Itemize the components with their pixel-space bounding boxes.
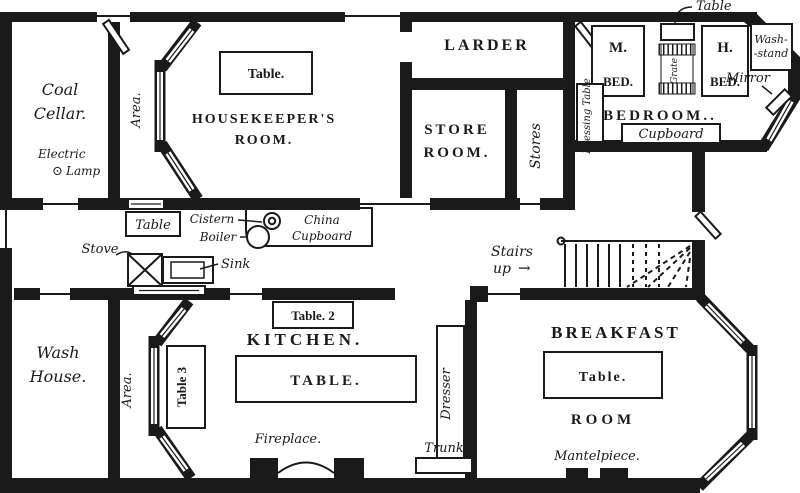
- h-bed-label-line1: H.: [717, 40, 733, 56]
- coal-cellar-label-line2: Cellar.: [34, 104, 86, 123]
- wall-segment: [400, 62, 412, 198]
- stove: Stove: [82, 242, 163, 286]
- dresser-label: Dresser: [439, 367, 454, 420]
- bedroom-label: BEDROOM..: [603, 108, 717, 124]
- bedroom-table-label: Table: [696, 0, 732, 14]
- trunk: Trunk: [416, 441, 472, 473]
- sink-label: Sink: [221, 257, 250, 272]
- wash-house-label-line1: Wash: [36, 343, 79, 362]
- grate-label: Grate: [670, 58, 680, 84]
- wall-segment: [505, 90, 517, 198]
- wash-stand-label-line1: Wash-: [754, 33, 788, 46]
- cistern-inner-circle: [269, 218, 275, 224]
- wall-segment: [0, 248, 12, 480]
- lamp-icon: ⊙: [52, 164, 63, 179]
- electric-lamp: Electric ⊙ Lamp: [37, 147, 101, 179]
- door-swing: [695, 212, 720, 239]
- wall-segment: [78, 198, 128, 210]
- wall-segment: [430, 198, 520, 210]
- wall-segment: [108, 22, 120, 198]
- kitchen-table-label: TABLE.: [290, 373, 362, 389]
- china-cupboard-label-line2: Cupboard: [292, 229, 352, 243]
- stairs-up-arrow-icon: →: [518, 259, 531, 277]
- kitchen-table-3: Table 3: [167, 346, 205, 428]
- m-bed-label-line1: M.: [609, 40, 627, 56]
- breakfast-table-label: Table.: [579, 370, 627, 385]
- wall-segment: [465, 300, 477, 478]
- breakfast-table: Table.: [544, 352, 662, 398]
- kitchen-table: TABLE.: [236, 356, 416, 402]
- kitchen-label: KITCHEN.: [247, 330, 364, 349]
- coal-cellar-label-line1: Coal: [42, 80, 79, 99]
- breakfast-room-label-line1: BREAKFAST: [551, 323, 681, 342]
- floor-plan: Stairs up → Coal Cellar. HOUSEKEEPER'S R…: [0, 0, 800, 493]
- wall-segment: [412, 78, 563, 90]
- fireplace-label: Fireplace.: [254, 432, 321, 447]
- passage-table-label: Table: [135, 218, 171, 233]
- store-room-label-line2: ROOM.: [423, 145, 490, 161]
- housekeepers-room-label-line1: HOUSEKEEPER'S: [192, 112, 336, 127]
- wall-segment: [108, 300, 120, 478]
- mantelpiece-label: Mantelpiece.: [553, 449, 640, 464]
- mirror-leader: [762, 86, 772, 94]
- electric-lamp-label-line1: Electric: [37, 147, 86, 161]
- housekeepers-bay-window: [160, 22, 198, 199]
- china-cupboard-label-line1: China: [304, 213, 340, 227]
- wall-segment: [130, 12, 345, 22]
- housekeepers-table-label: Table.: [248, 67, 284, 82]
- boiler-circle: [247, 226, 269, 248]
- boiler-label: Boiler: [199, 230, 238, 244]
- mirror-label: Mirror: [725, 71, 771, 86]
- electric-lamp-label-line2: Lamp: [65, 164, 101, 178]
- stores-label: Stores: [528, 123, 544, 169]
- wall-segment: [14, 288, 40, 300]
- china-cupboard: China Cupboard: [246, 208, 372, 248]
- area-bottom-label: Area.: [120, 372, 135, 408]
- wall-segment: [520, 288, 697, 300]
- boiler: Boiler: [199, 230, 247, 244]
- wall-segment: [0, 478, 700, 493]
- stairs: [558, 238, 693, 288]
- wash-stand: Wash- -stand: [751, 24, 792, 70]
- cistern-label: Cistern: [190, 212, 235, 226]
- wall-segment: [692, 152, 705, 212]
- stairs-label-line2: up: [493, 261, 511, 277]
- area-top-label: Area.: [129, 92, 144, 128]
- cistern: Cistern: [190, 212, 262, 226]
- mantelpiece: Mantelpiece.: [553, 449, 640, 478]
- wall-segment: [0, 12, 12, 205]
- cistern-leader: [238, 220, 262, 222]
- wall-segment: [262, 288, 395, 300]
- table3-label: Table 3: [174, 366, 189, 407]
- kitchen-table-2: Table. 2: [273, 302, 353, 328]
- stove-label: Stove: [82, 242, 119, 257]
- wall-segment: [0, 12, 97, 22]
- dressing-table-label: Dressing Table: [582, 78, 593, 155]
- fireplace: Fireplace.: [250, 432, 364, 483]
- passage-table: Table: [126, 212, 180, 236]
- grate: Grate: [659, 44, 695, 94]
- store-room-label-line1: STORE: [424, 122, 490, 138]
- trunk-label: Trunk: [424, 441, 464, 456]
- breakfast-bay-window: [699, 297, 752, 487]
- wall-pillar: [470, 286, 488, 302]
- m-bed-label-line2: BED.: [603, 74, 633, 89]
- housekeepers-room-label-line2: ROOM.: [235, 133, 294, 148]
- wall-segment: [563, 22, 575, 210]
- floor-plan-drawing: Stairs up → Coal Cellar. HOUSEKEEPER'S R…: [0, 0, 800, 493]
- bedroom-cupboard: Cupboard: [622, 124, 720, 143]
- wash-stand-label-line2: -stand: [754, 47, 788, 60]
- housekeepers-table: Table.: [220, 52, 312, 94]
- bedroom-cupboard-label: Cupboard: [638, 127, 703, 142]
- breakfast-room-label-line2: ROOM: [571, 412, 635, 428]
- wall-segment: [400, 22, 412, 32]
- stairs-annotation: Stairs up →: [491, 244, 533, 277]
- larder-label: LARDER: [444, 37, 530, 54]
- table2-label: Table. 2: [291, 308, 335, 323]
- stairs-label-line1: Stairs: [491, 244, 533, 260]
- wash-house-label-line2: House.: [29, 367, 87, 386]
